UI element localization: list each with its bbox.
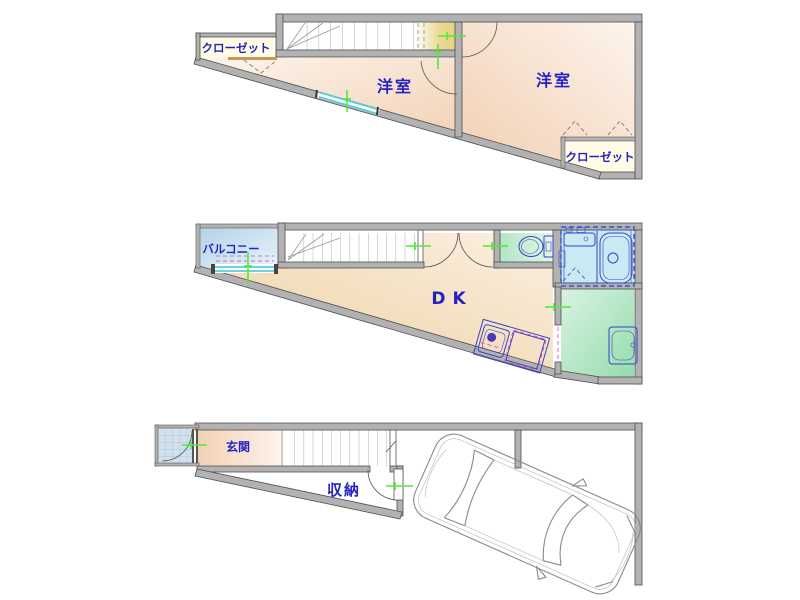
floor-plan-2f: バルコニー DK	[194, 223, 642, 384]
floor-plan-1f: 玄関 収納	[155, 419, 651, 600]
room-label-entrance: 玄関	[226, 439, 250, 454]
room-label-closet-left: クローゼット	[202, 41, 271, 55]
room-label-western-right: 洋室	[536, 71, 572, 90]
storage-door-swing	[368, 470, 398, 500]
floor-plan-page: 洋室 洋室 クローゼット クローゼット	[0, 0, 800, 600]
floor-plan-3f: 洋室 洋室 クローゼット クローゼット	[194, 14, 642, 179]
floor-plan-drawing: 洋室 洋室 クローゼット クローゼット	[0, 0, 800, 600]
room-label-western-left: 洋室	[377, 77, 413, 96]
stairs-2f-treads	[300, 233, 418, 262]
car-illustration	[403, 419, 651, 600]
washroom-floor	[561, 287, 634, 380]
stairs-1f-treads	[288, 430, 390, 466]
room-label-storage: 収納	[327, 481, 361, 499]
room-label-closet-right: クローゼット	[566, 150, 635, 164]
room-label-dk: DK	[431, 289, 472, 309]
room-label-balcony: バルコニー	[202, 242, 259, 256]
